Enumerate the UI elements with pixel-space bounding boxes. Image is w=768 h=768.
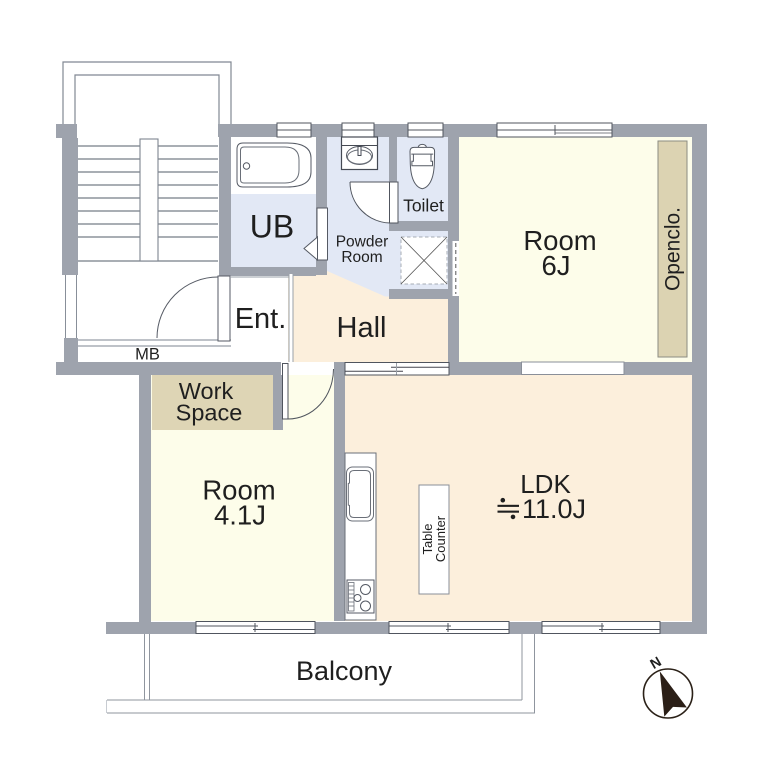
- svg-text:Balcony: Balcony: [296, 656, 393, 686]
- svg-text:Space: Space: [176, 400, 243, 426]
- svg-text:Openclo.: Openclo.: [662, 207, 685, 291]
- svg-text:Powder: Powder: [336, 234, 389, 251]
- svg-text:4.1J: 4.1J: [214, 500, 266, 531]
- svg-text:6J: 6J: [541, 250, 570, 281]
- svg-text:11.0J: 11.0J: [522, 494, 586, 524]
- svg-text:Ent.: Ent.: [235, 303, 287, 335]
- svg-text:MB: MB: [135, 346, 160, 364]
- svg-text:Hall: Hall: [337, 312, 387, 344]
- svg-text:Room: Room: [341, 249, 382, 266]
- svg-text:UB: UB: [250, 209, 294, 245]
- svg-text:Toilet: Toilet: [403, 196, 444, 216]
